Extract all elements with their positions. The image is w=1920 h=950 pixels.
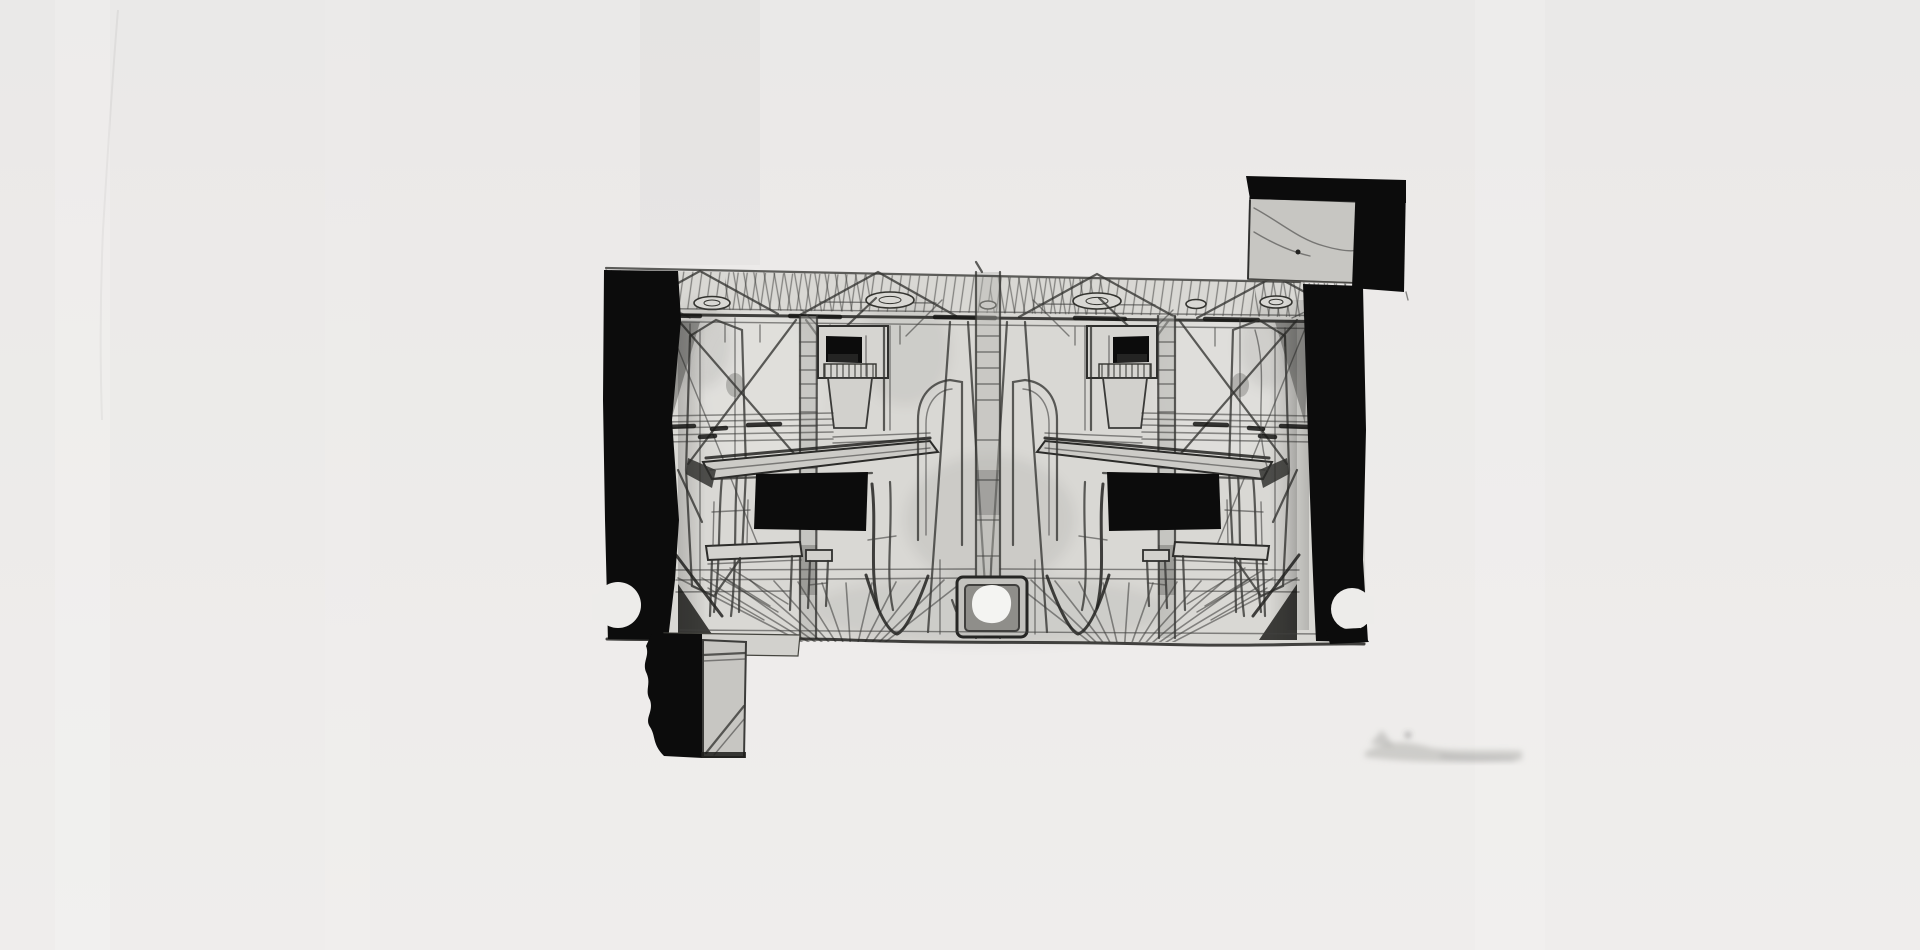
window-glass-scribble bbox=[828, 354, 858, 362]
plate-hole bbox=[972, 585, 1011, 623]
crack-dot bbox=[1296, 250, 1301, 255]
bench-seat bbox=[706, 542, 802, 560]
window-pedestal bbox=[828, 378, 872, 428]
ceiling-hatch bbox=[725, 272, 870, 312]
chimney-right-column bbox=[1352, 180, 1406, 292]
foot-panel bbox=[703, 640, 746, 757]
chimney-block bbox=[1246, 176, 1408, 300]
etching-artwork bbox=[0, 0, 1920, 950]
light-band bbox=[325, 0, 370, 950]
right-notch-gap bbox=[1362, 596, 1374, 624]
light-band bbox=[55, 0, 110, 950]
border-smear-right bbox=[1285, 300, 1309, 630]
left-notch-gap bbox=[592, 594, 604, 620]
artwork-canvas bbox=[0, 0, 1920, 950]
dark-band bbox=[640, 0, 760, 265]
light-band bbox=[1475, 0, 1545, 950]
etching-plate bbox=[592, 262, 1374, 668]
border-smear bbox=[678, 320, 706, 640]
window-sill bbox=[824, 364, 876, 378]
table-kneehole bbox=[754, 472, 868, 531]
chimney-panel bbox=[1248, 198, 1360, 283]
